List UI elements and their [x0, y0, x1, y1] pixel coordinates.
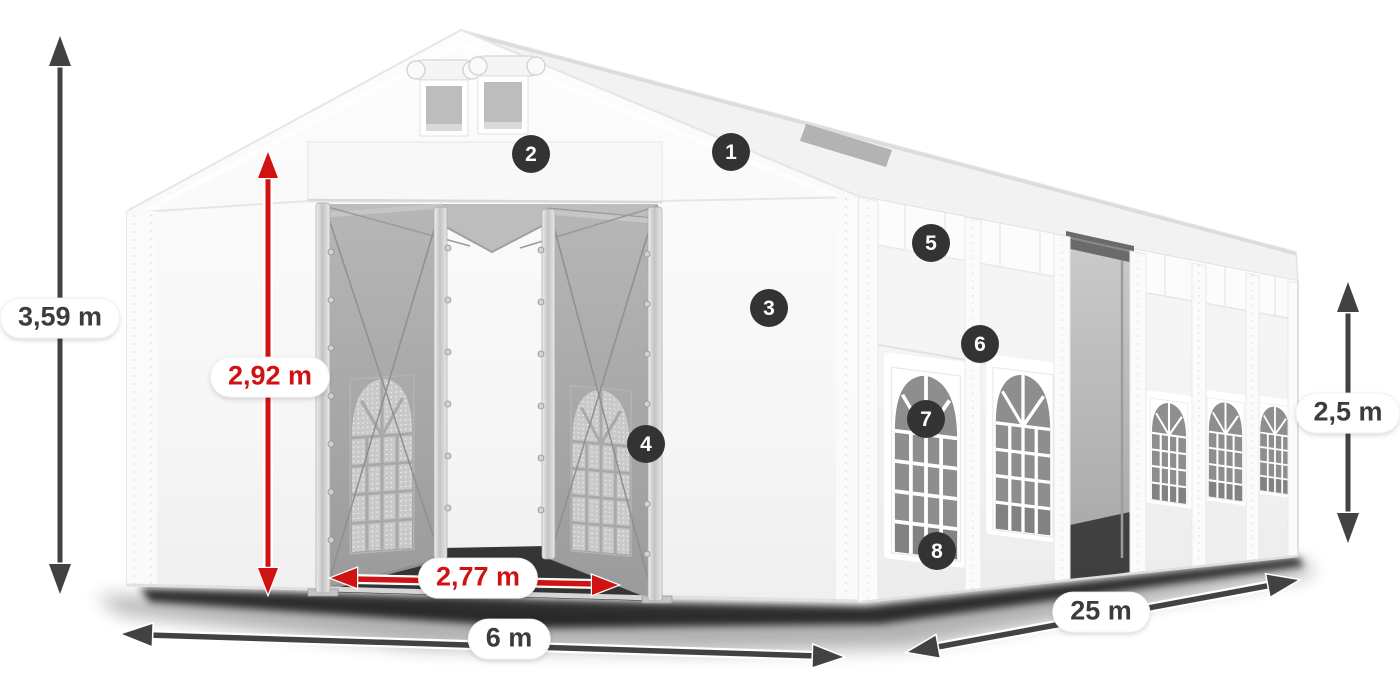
callout-badge-2: 2	[512, 135, 550, 173]
door-width-label: 2,77 m	[419, 559, 537, 598]
door-post	[434, 207, 447, 559]
callout-badge-7: 7	[907, 400, 945, 438]
tent-illustration	[0, 0, 1400, 700]
side-window-4	[1203, 389, 1248, 506]
side-height-label: 2,5 m	[1296, 394, 1399, 433]
door-post	[316, 203, 330, 593]
tent-dimensions-diagram: 3,59 m 2,92 m 2,77 m 6 m 25 m 2,5 m 1 2 …	[0, 0, 1400, 700]
callout-badge-1: 1	[712, 133, 750, 171]
callout-badge-8: 8	[918, 532, 956, 570]
door-post	[542, 209, 555, 559]
door-lintel	[308, 142, 662, 202]
front-width-label: 6 m	[469, 620, 550, 659]
side-window-2	[986, 354, 1059, 543]
left-door-panel	[326, 206, 442, 590]
front-corner-strap-right	[836, 196, 858, 601]
door-window	[571, 386, 631, 556]
door-height-label: 2,92 m	[211, 358, 329, 397]
right-door-panel	[548, 208, 654, 600]
side-door-opening	[1066, 231, 1134, 581]
front-corner-strap-left	[127, 211, 157, 587]
total-height-label: 3,59 m	[1, 299, 119, 338]
callout-badge-3: 3	[750, 289, 788, 327]
callout-badge-6: 6	[961, 325, 999, 363]
side-length-label: 25 m	[1053, 593, 1149, 632]
callout-badge-4: 4	[627, 425, 665, 463]
side-window-3	[1146, 390, 1192, 509]
callout-badge-5: 5	[912, 224, 950, 262]
